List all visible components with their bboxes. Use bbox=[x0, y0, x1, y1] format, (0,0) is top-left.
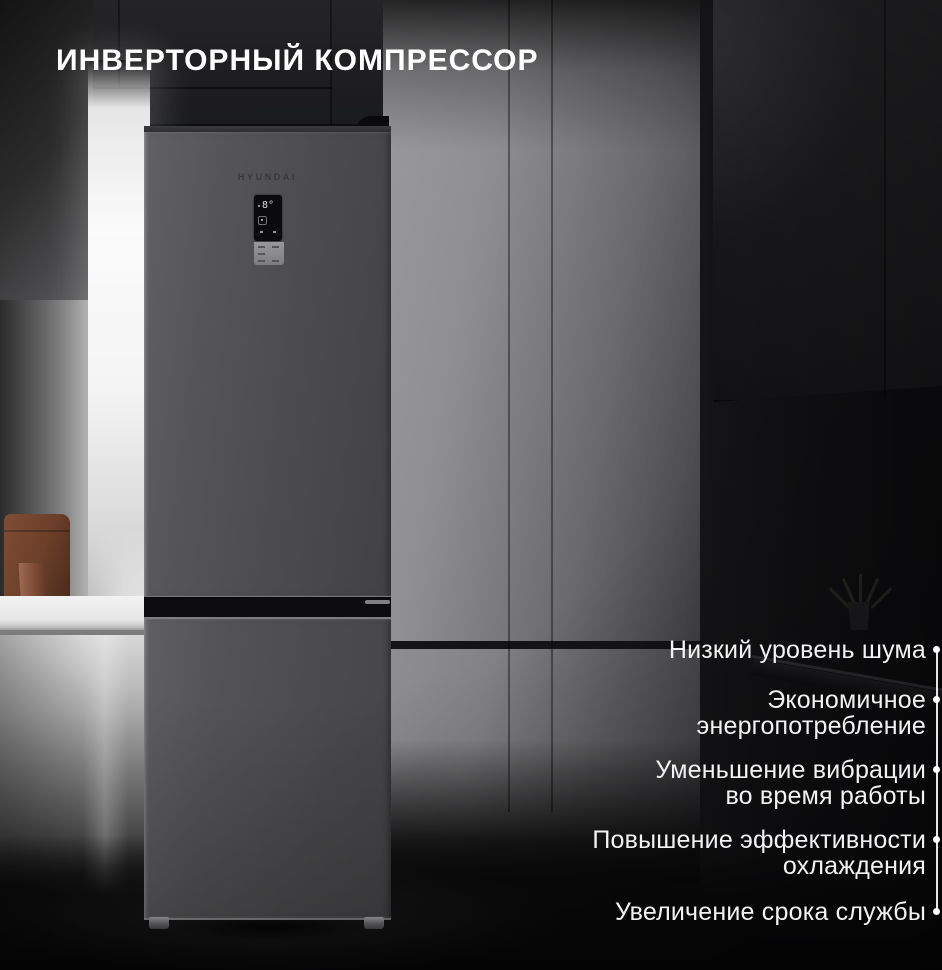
feature-bullet bbox=[933, 646, 940, 653]
feature-bullet bbox=[933, 908, 940, 915]
feature-text: во время работы bbox=[286, 783, 926, 809]
kitchen-scene: HYUNDAI 8° ИНВЕРТОРНЫЙ КОМПРЕСС bbox=[0, 0, 942, 970]
feature-bullet bbox=[933, 696, 940, 703]
feature-text: охлаждения bbox=[286, 853, 926, 879]
feature-bullet bbox=[933, 836, 940, 843]
feature-item: Уменьшение вибрации во время работы bbox=[286, 757, 942, 809]
feature-item: Увеличение срока службы bbox=[286, 899, 942, 925]
feature-text: Уменьшение вибрации bbox=[286, 757, 926, 783]
feature-item: Экономичное энергопотребление bbox=[286, 687, 942, 739]
feature-text: Увеличение срока службы bbox=[286, 899, 926, 925]
feature-text: Повышение эффективности bbox=[286, 827, 926, 853]
feature-bullet bbox=[933, 766, 940, 773]
feature-item: Повышение эффективности охлаждения bbox=[286, 827, 942, 879]
feature-item: Низкий уровень шума bbox=[286, 637, 942, 663]
features-list: Низкий уровень шума Экономичное энергопо… bbox=[0, 0, 942, 970]
feature-text: Экономичное bbox=[286, 687, 926, 713]
feature-text: Низкий уровень шума bbox=[286, 637, 926, 663]
feature-text: энергопотребление bbox=[286, 713, 926, 739]
